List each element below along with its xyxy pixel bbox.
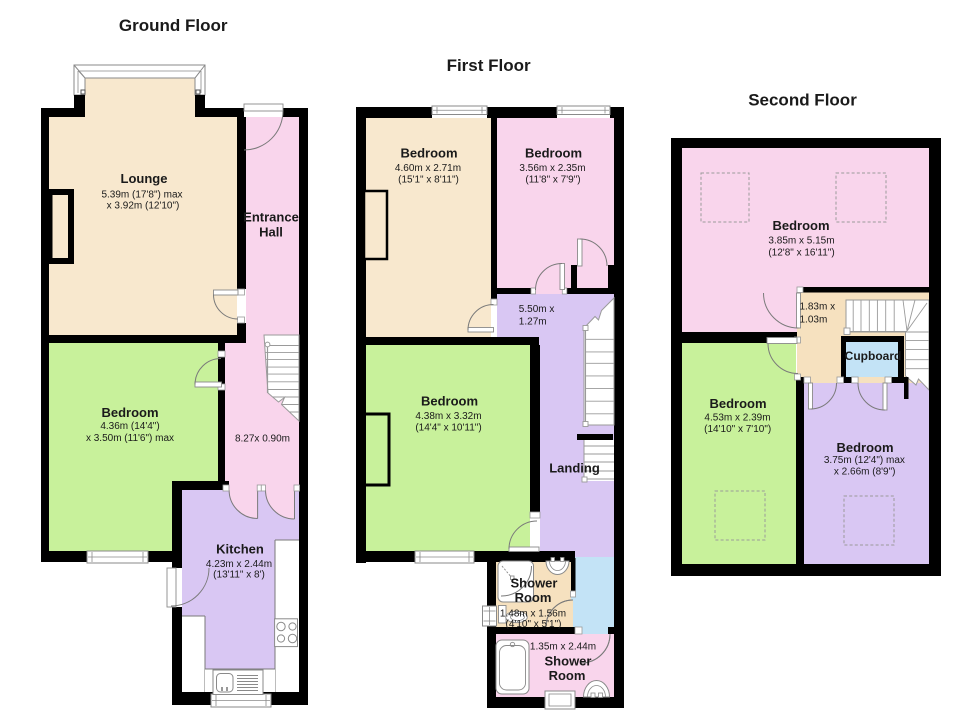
svg-text:4.60m x 2.71m: 4.60m x 2.71m: [395, 163, 461, 174]
svg-text:Landing: Landing: [549, 461, 600, 476]
svg-text:Hall: Hall: [259, 225, 283, 240]
svg-text:(12'8" x 16'11"): (12'8" x 16'11"): [768, 248, 834, 259]
svg-text:4.36m (14'4"): 4.36m (14'4"): [100, 421, 159, 432]
svg-text:3.56m x 2.35m: 3.56m x 2.35m: [519, 163, 585, 174]
svg-text:4.53m x 2.39m: 4.53m x 2.39m: [704, 413, 770, 424]
svg-text:First Floor: First Floor: [447, 56, 531, 75]
svg-text:(13'11" x 8'): (13'11" x 8'): [213, 570, 265, 581]
svg-text:x 2.66m (8'9"): x 2.66m (8'9"): [834, 467, 896, 478]
svg-text:Shower: Shower: [511, 576, 558, 591]
svg-text:4.23m x 2.44m: 4.23m x 2.44m: [206, 559, 272, 570]
svg-text:Bedroom: Bedroom: [421, 394, 478, 409]
svg-text:1.35m x 2.44m: 1.35m x 2.44m: [530, 642, 596, 653]
svg-text:Bedroom: Bedroom: [101, 405, 158, 420]
svg-text:3.75m (12'4") max: 3.75m (12'4") max: [824, 455, 905, 466]
svg-text:4.38m x 3.32m: 4.38m x 3.32m: [415, 411, 481, 422]
svg-text:Shower: Shower: [545, 654, 592, 669]
svg-text:Bedroom: Bedroom: [525, 146, 582, 161]
svg-text:(14'4" x 10'11"): (14'4" x 10'11"): [415, 423, 481, 434]
svg-text:Ground Floor: Ground Floor: [119, 16, 228, 35]
svg-text:3.85m x 5.15m: 3.85m x 5.15m: [768, 236, 834, 247]
svg-text:8.27x 0.90m: 8.27x 0.90m: [235, 434, 290, 445]
svg-text:5.50m x: 5.50m x: [519, 304, 555, 315]
svg-text:(14'10" x 7'10"): (14'10" x 7'10"): [704, 424, 771, 435]
svg-text:1.27m: 1.27m: [519, 316, 547, 327]
svg-text:Entrance: Entrance: [243, 210, 299, 225]
svg-text:1.03m: 1.03m: [800, 315, 828, 326]
svg-text:1.83m x: 1.83m x: [800, 302, 836, 313]
svg-text:1.48m x 1.56m: 1.48m x 1.56m: [500, 609, 566, 620]
svg-text:Bedroom: Bedroom: [709, 396, 766, 411]
svg-text:(4'10" x 5'1"): (4'10" x 5'1"): [506, 619, 562, 630]
svg-text:Bedroom: Bedroom: [836, 440, 893, 455]
svg-text:Bedroom: Bedroom: [400, 146, 457, 161]
svg-text:x 3.50m (11'6") max: x 3.50m (11'6") max: [86, 433, 174, 444]
svg-text:Cupboard: Cupboard: [845, 349, 902, 363]
svg-text:(11'8" x 7'9"): (11'8" x 7'9"): [525, 175, 580, 186]
svg-text:(15'1" x 8'11"): (15'1" x 8'11"): [398, 175, 459, 186]
svg-text:Kitchen: Kitchen: [216, 542, 264, 557]
svg-text:Second Floor: Second Floor: [748, 91, 857, 110]
svg-text:Room: Room: [515, 590, 552, 605]
svg-text:x 3.92m (12'10"): x 3.92m (12'10"): [107, 201, 180, 212]
svg-text:Lounge: Lounge: [121, 171, 168, 186]
svg-text:Bedroom: Bedroom: [772, 218, 829, 233]
svg-text:Room: Room: [549, 668, 586, 683]
svg-text:5.39m (17'8") max: 5.39m (17'8") max: [101, 190, 182, 201]
